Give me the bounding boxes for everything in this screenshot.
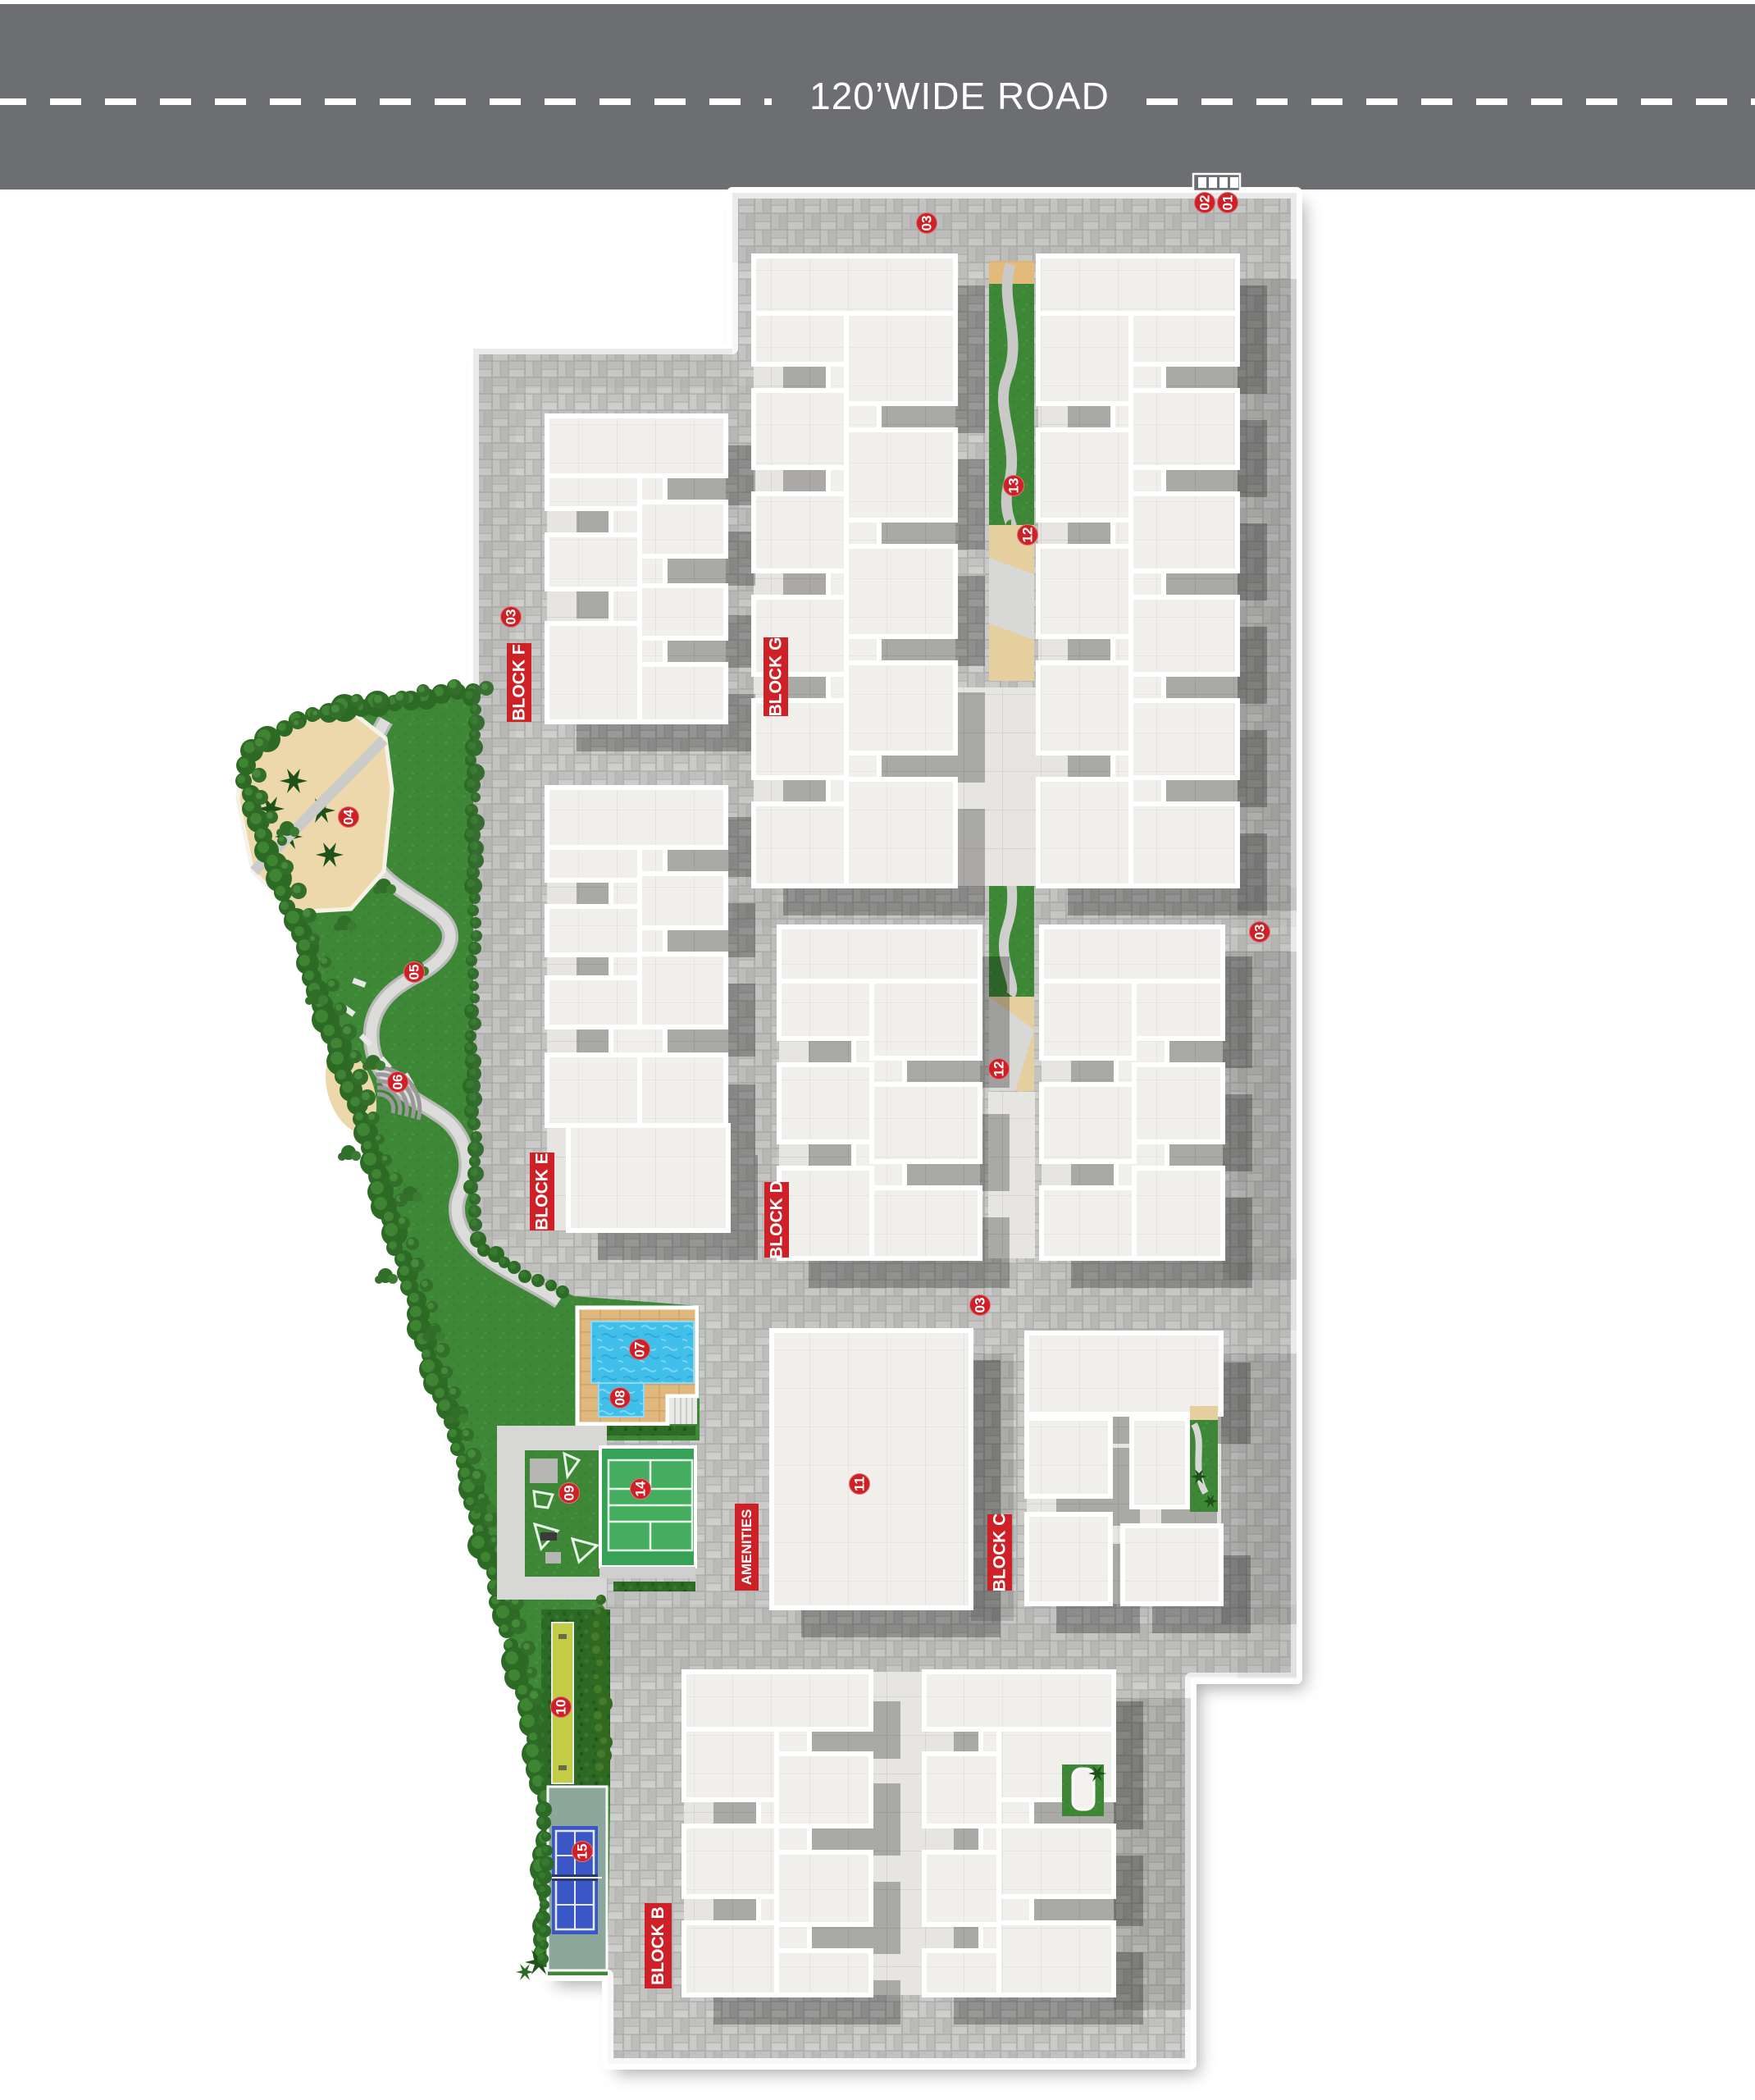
svg-text:14: 14 [633,1481,649,1496]
svg-text:02: 02 [1197,195,1213,211]
svg-text:06: 06 [390,1075,406,1090]
svg-text:04: 04 [341,809,357,824]
svg-text:08: 08 [613,1390,628,1406]
svg-text:11: 11 [852,1477,868,1491]
svg-text:BLOCK G: BLOCK G [767,637,786,717]
svg-text:13: 13 [1006,478,1022,494]
svg-text:15: 15 [575,1844,590,1860]
svg-text:01: 01 [1220,195,1236,211]
svg-text:03: 03 [919,216,935,231]
svg-text:12: 12 [1020,527,1036,543]
svg-text:09: 09 [562,1486,577,1501]
svg-text:12: 12 [991,1061,1007,1077]
svg-text:07: 07 [632,1342,648,1358]
svg-text:03: 03 [1252,924,1268,940]
svg-text:BLOCK C: BLOCK C [991,1513,1010,1592]
svg-text:120’WIDE ROAD: 120’WIDE ROAD [809,75,1110,117]
svg-text:03: 03 [504,609,519,625]
svg-text:BLOCK D: BLOCK D [768,1180,786,1259]
svg-text:BLOCK F: BLOCK F [510,644,529,720]
svg-text:AMENITIES: AMENITIES [739,1509,754,1586]
svg-text:BLOCK B: BLOCK B [649,1906,668,1985]
svg-text:03: 03 [973,1298,988,1313]
svg-text:10: 10 [554,1700,569,1715]
svg-text:BLOCK E: BLOCK E [533,1153,552,1230]
svg-text:05: 05 [407,965,422,980]
